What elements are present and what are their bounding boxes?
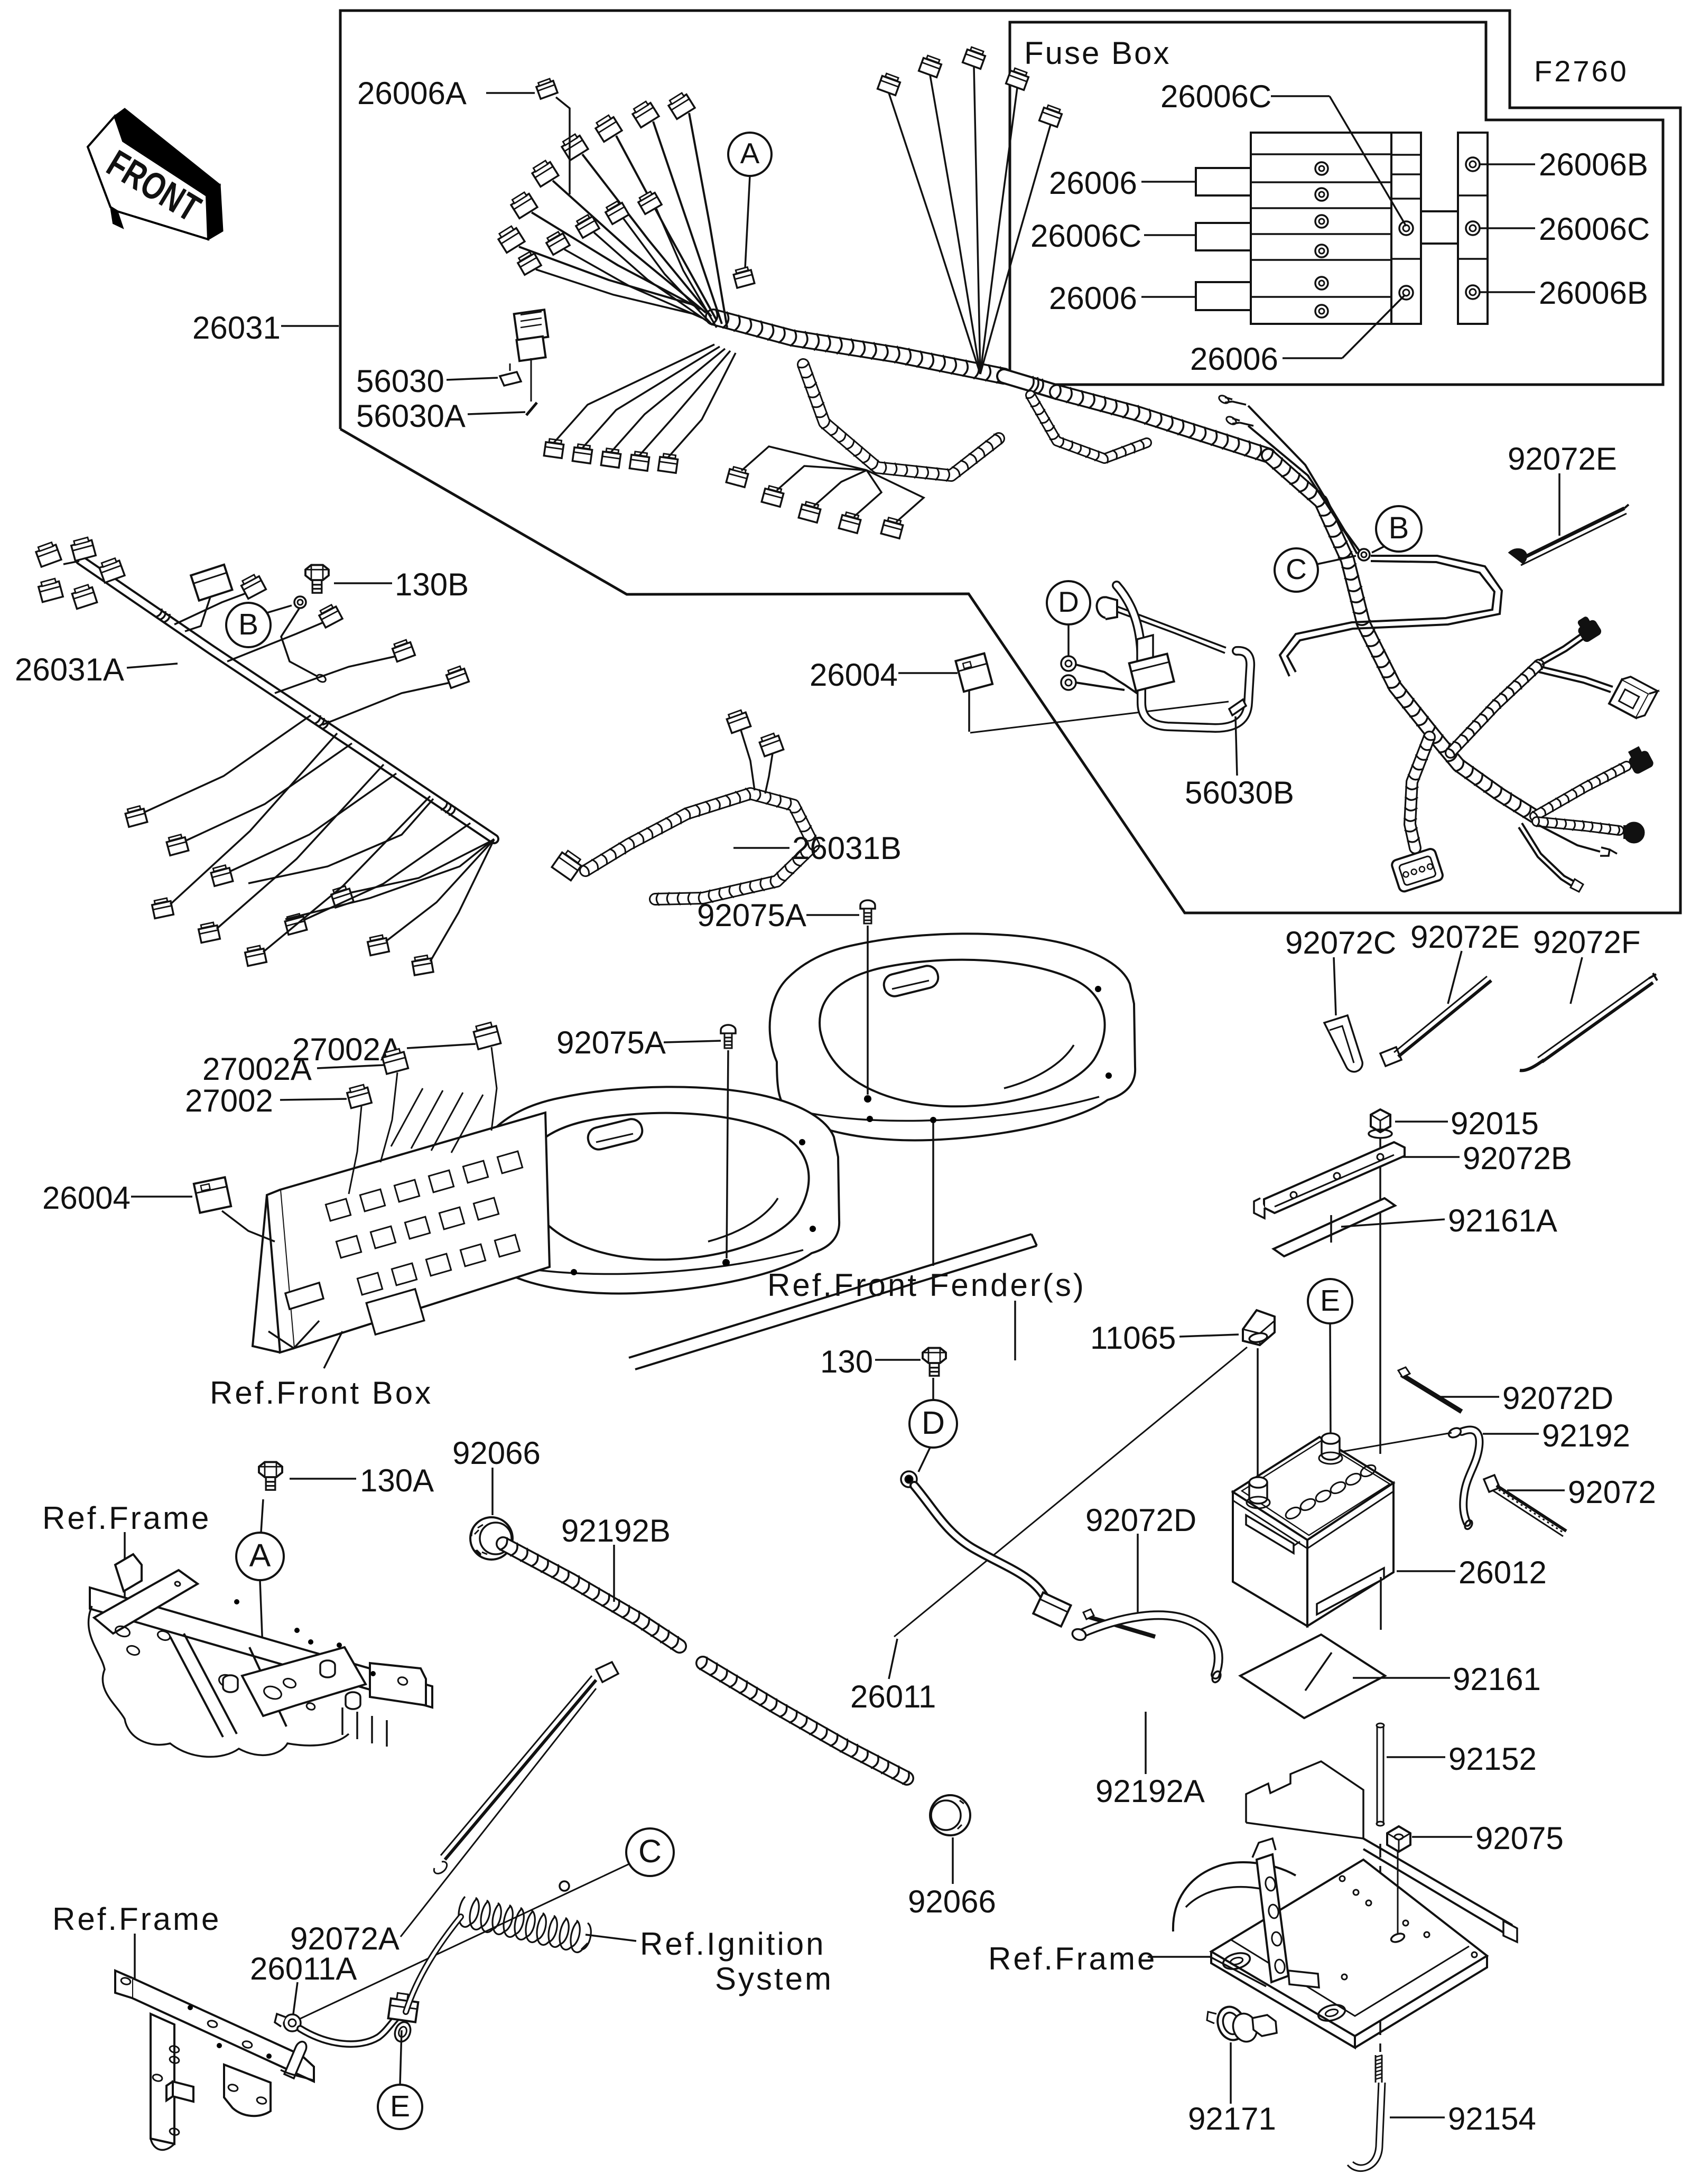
svg-text:92192: 92192 bbox=[1542, 1418, 1630, 1453]
svg-text:92192A: 92192A bbox=[1095, 1774, 1205, 1809]
svg-text:92154: 92154 bbox=[1448, 2101, 1536, 2136]
svg-text:92072C: 92072C bbox=[1285, 925, 1396, 960]
svg-text:26006: 26006 bbox=[1049, 165, 1137, 201]
svg-text:26006C: 26006C bbox=[1160, 79, 1271, 114]
svg-text:B: B bbox=[238, 608, 258, 641]
svg-text:E: E bbox=[390, 2089, 410, 2123]
svg-text:92072D: 92072D bbox=[1502, 1380, 1613, 1416]
svg-text:92075: 92075 bbox=[1475, 1821, 1564, 1856]
svg-text:Ref.Front Fender(s): Ref.Front Fender(s) bbox=[767, 1267, 1086, 1303]
svg-text:Ref.Frame: Ref.Frame bbox=[52, 1901, 221, 1937]
svg-text:92072F: 92072F bbox=[1533, 925, 1641, 960]
svg-text:92171: 92171 bbox=[1188, 2101, 1276, 2136]
svg-text:26011A: 26011A bbox=[250, 1951, 357, 1986]
svg-text:92072D: 92072D bbox=[1085, 1502, 1196, 1538]
svg-text:26006: 26006 bbox=[1190, 341, 1278, 377]
svg-text:Ref.Frame: Ref.Frame bbox=[42, 1500, 211, 1536]
svg-text:C: C bbox=[638, 1833, 662, 1869]
svg-text:26004: 26004 bbox=[810, 657, 898, 693]
svg-text:A: A bbox=[249, 1537, 271, 1573]
svg-text:Ref.Ignition: Ref.Ignition bbox=[640, 1926, 826, 1962]
svg-text:92072E: 92072E bbox=[1410, 919, 1520, 955]
svg-text:26031B: 26031B bbox=[792, 830, 902, 866]
svg-text:26006B: 26006B bbox=[1539, 147, 1648, 182]
svg-text:Fuse Box: Fuse Box bbox=[1024, 35, 1170, 71]
svg-text:26006B: 26006B bbox=[1539, 275, 1648, 311]
svg-text:92161: 92161 bbox=[1453, 1662, 1541, 1697]
svg-text:D: D bbox=[922, 1405, 945, 1441]
svg-text:26011: 26011 bbox=[850, 1679, 936, 1714]
svg-text:92072B: 92072B bbox=[1463, 1141, 1572, 1176]
svg-text:92075A: 92075A bbox=[556, 1025, 666, 1060]
svg-text:26004: 26004 bbox=[42, 1180, 131, 1216]
svg-text:A: A bbox=[740, 137, 760, 170]
svg-text:D: D bbox=[1058, 585, 1079, 618]
svg-text:92192B: 92192B bbox=[561, 1513, 671, 1548]
svg-text:26031: 26031 bbox=[192, 310, 281, 346]
svg-text:92072E: 92072E bbox=[1508, 441, 1617, 477]
svg-text:56030B: 56030B bbox=[1185, 775, 1294, 810]
svg-text:27002: 27002 bbox=[185, 1083, 273, 1118]
svg-text:26006C: 26006C bbox=[1539, 211, 1650, 247]
svg-text:C: C bbox=[1286, 553, 1307, 585]
svg-text:56030A: 56030A bbox=[356, 398, 466, 434]
svg-text:56030: 56030 bbox=[356, 363, 444, 399]
svg-text:B: B bbox=[1389, 511, 1409, 545]
svg-text:130A: 130A bbox=[360, 1463, 434, 1498]
svg-text:92075A: 92075A bbox=[697, 898, 806, 933]
svg-text:Ref.Frame: Ref.Frame bbox=[988, 1941, 1157, 1976]
svg-text:92066: 92066 bbox=[452, 1435, 541, 1471]
svg-text:26006A: 26006A bbox=[357, 76, 467, 111]
svg-text:92066: 92066 bbox=[908, 1884, 996, 1919]
svg-text:11065: 11065 bbox=[1090, 1320, 1176, 1356]
svg-text:92015: 92015 bbox=[1451, 1106, 1539, 1141]
svg-text:F2760: F2760 bbox=[1534, 54, 1629, 88]
svg-text:System: System bbox=[715, 1961, 833, 1996]
svg-text:26031A: 26031A bbox=[15, 652, 124, 687]
svg-text:Ref.Front Box: Ref.Front Box bbox=[210, 1375, 433, 1411]
svg-text:26012: 26012 bbox=[1458, 1555, 1547, 1590]
svg-text:130B: 130B bbox=[395, 567, 469, 602]
svg-text:26006: 26006 bbox=[1049, 281, 1137, 316]
svg-text:92072: 92072 bbox=[1568, 1474, 1656, 1510]
svg-text:26006C: 26006C bbox=[1030, 218, 1141, 254]
svg-text:27002A: 27002A bbox=[202, 1051, 312, 1087]
svg-text:E: E bbox=[1320, 1284, 1340, 1318]
svg-text:92072A: 92072A bbox=[290, 1921, 399, 1956]
svg-text:92152: 92152 bbox=[1448, 1741, 1537, 1777]
svg-text:92161A: 92161A bbox=[1448, 1203, 1557, 1238]
svg-text:130: 130 bbox=[820, 1344, 873, 1379]
